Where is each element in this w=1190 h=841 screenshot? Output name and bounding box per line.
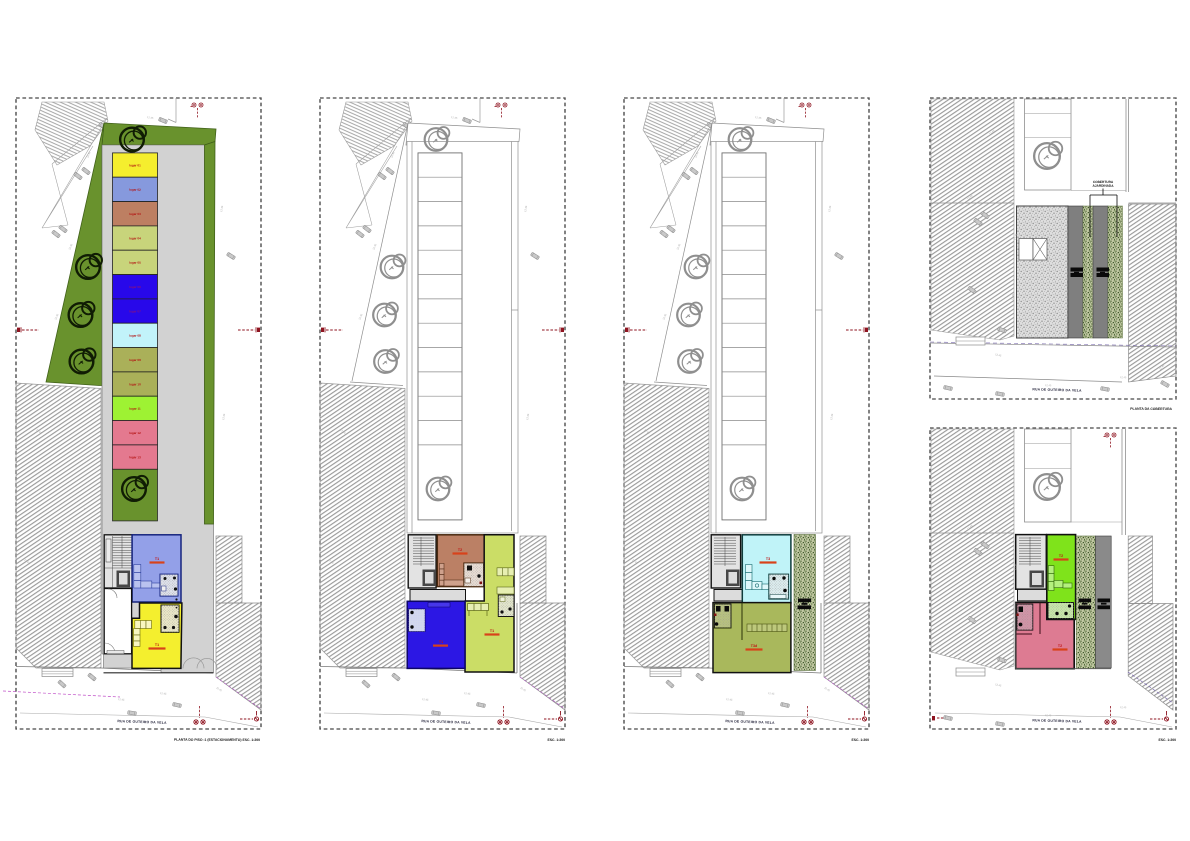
- svg-text:lugar 06: lugar 06: [129, 285, 141, 289]
- svg-text:ESC. 1:200: ESC. 1:200: [851, 738, 869, 742]
- svg-text:lugar 08: lugar 08: [129, 334, 141, 338]
- svg-text:T1: T1: [155, 557, 159, 561]
- svg-text:lugar 09: lugar 09: [129, 358, 141, 362]
- svg-text:T3: T3: [766, 557, 770, 561]
- svg-text:lugar 13: lugar 13: [129, 455, 141, 459]
- svg-text:PLANTA DA COBERTURA: PLANTA DA COBERTURA: [1130, 407, 1172, 411]
- svg-text:lugar 10: lugar 10: [129, 382, 141, 386]
- svg-text:ESC. 1:200: ESC. 1:200: [547, 738, 565, 742]
- svg-text:12.45: 12.45: [1120, 706, 1127, 709]
- svg-text:AJARDINADA: AJARDINADA: [1092, 184, 1114, 188]
- svg-text:lugar 05: lugar 05: [129, 261, 141, 265]
- svg-text:12.45: 12.45: [1120, 376, 1127, 379]
- svg-text:T1: T1: [155, 643, 159, 647]
- svg-text:T2: T2: [1058, 644, 1062, 648]
- svg-text:lugar 04: lugar 04: [129, 236, 141, 240]
- svg-text:T2: T2: [1059, 554, 1063, 558]
- svg-text:T1: T1: [490, 629, 494, 633]
- svg-text:lugar 01: lugar 01: [129, 163, 141, 167]
- svg-text:lugar 12: lugar 12: [129, 431, 141, 435]
- svg-text:T1: T1: [439, 640, 443, 644]
- svg-text:ESC. 1:200: ESC. 1:200: [1158, 738, 1176, 742]
- svg-text:T2: T2: [458, 548, 462, 552]
- svg-text:lugar 02: lugar 02: [129, 188, 141, 192]
- svg-text:12.45: 12.45: [1045, 384, 1052, 387]
- svg-text:lugar 03: lugar 03: [129, 212, 141, 216]
- svg-text:lugar 07: lugar 07: [129, 309, 141, 313]
- svg-text:PLANTA DO PISO -1 (ESTACIONAME: PLANTA DO PISO -1 (ESTACIONAMENTO) ESC. …: [174, 738, 260, 742]
- svg-text:lugar 11: lugar 11: [129, 407, 141, 411]
- svg-text:T3d: T3d: [751, 644, 757, 648]
- svg-text:12.45: 12.45: [1045, 714, 1052, 717]
